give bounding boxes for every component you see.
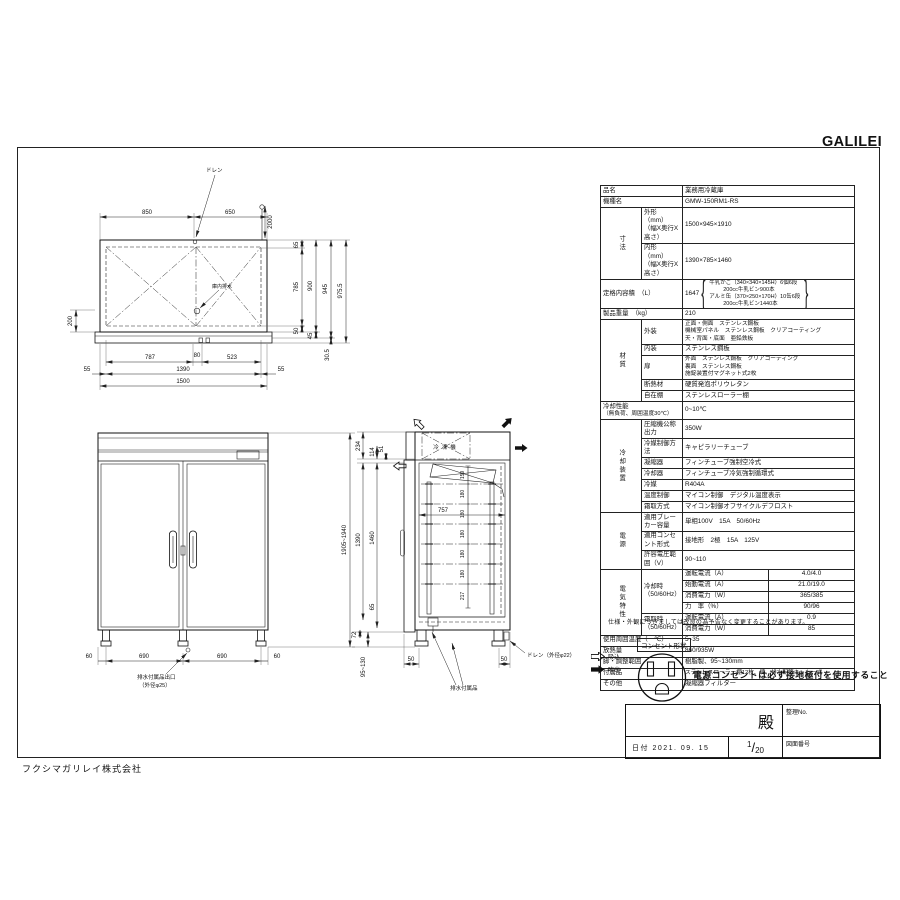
- group-dimensions: 寸法: [601, 208, 642, 280]
- dim-30-5: 30.5: [325, 349, 331, 361]
- group-material: 材質: [601, 320, 642, 402]
- group-refrigeration: 冷却装置: [601, 420, 642, 513]
- cell-refrigerant-label: 冷媒: [642, 480, 683, 491]
- drawing-sheet: GALILEI フクシマガリレイ株式会社: [0, 0, 900, 900]
- dim-55-right: 55: [278, 367, 285, 373]
- dim-787: 787: [145, 355, 156, 361]
- cell-inner-label: 内形 （mm）（幅X奥行X高さ）: [642, 243, 683, 279]
- cell-run-current-value: 4.0/4.0: [769, 569, 855, 580]
- cell-start-current-label: 始動電流（A）: [683, 580, 769, 591]
- front-drain-label: 排水付属品出口: [137, 673, 176, 681]
- cell-outer-label: 外形 （mm）（幅X奥行X高さ）: [642, 208, 683, 244]
- dim-900: 900: [308, 280, 314, 291]
- cell-cooling-perf-value: 0~10℃: [683, 402, 855, 420]
- cell-shelf-label: 自在棚: [642, 391, 683, 402]
- front-drain-dia: （外径φ25）: [139, 681, 171, 689]
- cell-cooling-mode: 冷却時（50/60Hz）: [642, 569, 683, 613]
- cell-refrigerant-value: R404A: [683, 480, 855, 491]
- dim-1460: 1460: [370, 531, 376, 545]
- cell-pf-value: 90/96: [769, 602, 855, 613]
- cell-evaporator-value: フィンチューブ冷気強制循環式: [683, 469, 855, 480]
- dim-757: 757: [438, 508, 449, 514]
- cell-compressor-value: 350W: [683, 420, 855, 439]
- front-view: 60 690 690 60 排水付属品出口 （外径φ25） 1905~1940: [86, 433, 355, 689]
- spec-table: 品名業務用冷蔵庫 機種名GMW-150RM1-RS 寸法 外形 （mm）（幅X奥…: [600, 185, 855, 691]
- pitch-180-3: 180: [460, 530, 466, 539]
- dim-114: 114: [370, 447, 376, 457]
- cell-weight-label: 製品重量 （kg）: [601, 309, 683, 320]
- spec-note: 仕様・外観につきましては改良の為予告なく変更することがあります。: [608, 617, 809, 626]
- row-weight: 製品重量 （kg）210: [601, 309, 855, 320]
- dim-690-left: 690: [139, 654, 150, 660]
- cell-heat-value: 860/935W: [683, 646, 855, 657]
- dim-200: 200: [68, 315, 74, 326]
- row-capacity: 定格内容積 （L） 1647 牛乳かご（340×340×145H）6個6段 20…: [601, 279, 855, 309]
- cell-shelf-value: ステンレスローラー棚: [683, 391, 855, 402]
- dim-50-right: 50: [501, 657, 508, 663]
- dim-45: 45: [308, 332, 314, 339]
- cell-start-current-value: 21.0/19.0: [769, 580, 855, 591]
- row-model: 機種名GMW-150RM1-RS: [601, 197, 855, 208]
- cell-insulation-label: 断熱材: [642, 380, 683, 391]
- cell-interior-label: 内装: [642, 344, 683, 355]
- cell-defrost-label: 霜取方式: [642, 502, 683, 513]
- cell-model-value: GMW-150RM1-RS: [683, 197, 855, 208]
- pitch-180-5: 180: [460, 570, 466, 579]
- cell-interior-value: ステンレス鋼板: [683, 344, 855, 355]
- dim-60-left: 60: [86, 654, 93, 660]
- dim-51: 51: [379, 445, 385, 452]
- dim-1390: 1390: [176, 367, 190, 373]
- cell-pf-label: 力 率（%）: [683, 602, 769, 613]
- dim-234: 234: [356, 440, 362, 451]
- dim-2000: 2000: [268, 215, 274, 229]
- cell-refctrl-value: キャピラリーチューブ: [683, 439, 855, 458]
- blowout-arrow-icon: [591, 665, 605, 674]
- drain-acc-label: 排水付属品: [450, 684, 478, 692]
- cell-capacity-value: 1647 牛乳かご（340×340×145H）6個6段 200cc牛乳ビン900…: [683, 279, 855, 309]
- dim-523: 523: [227, 355, 238, 361]
- dim-50: 50: [294, 327, 300, 334]
- scale-cell: 1/20: [729, 737, 783, 758]
- dim-945: 945: [323, 283, 329, 294]
- dim-72: 72: [352, 631, 358, 638]
- inner-drain-label: 庫内排水: [212, 283, 232, 290]
- cell-door-value: 外面 ステンレス鋼板 クリアコーティング裏面 ステンレス鋼板施錠装置付マグネット…: [683, 355, 855, 380]
- pitch-180-1: 180: [460, 490, 466, 499]
- cell-legs-value: 樹脂製、95~130mm: [683, 657, 855, 668]
- cell-condenser-label: 凝縮器: [642, 458, 683, 469]
- row-cooling-perf: 冷却性能（無負荷、周囲温度30℃） 0~10℃: [601, 402, 855, 420]
- cell-defrost-value: マイコン制御オフサイクルデフロスト: [683, 502, 855, 513]
- dim-785: 785: [294, 281, 300, 292]
- cell-outlet-value: 接地形 2極 15A 125V: [683, 531, 855, 550]
- cell-condenser-value: フィンチューブ強制空冷式: [683, 458, 855, 469]
- dim-65: 65: [370, 603, 376, 610]
- legend-intake: 吸込: [591, 652, 620, 661]
- cell-power-value: 365/385: [769, 591, 855, 602]
- row-breaker: 電源 適用ブレーカー容量 単相100V 15A 50/60Hz: [601, 513, 855, 532]
- drain-label: ドレン: [206, 168, 223, 174]
- cell-weight-value: 210: [683, 309, 855, 320]
- cell-compressor-label: 圧縮機公称出力: [642, 420, 683, 439]
- legend-blowout: 吹出: [591, 665, 620, 674]
- dim-650: 650: [225, 210, 236, 216]
- cell-evaporator-label: 冷却器: [642, 469, 683, 480]
- dim-95-130: 95~130: [361, 656, 367, 677]
- ground-warning-text: 電源コンセントは必ず接地極付を使用すること: [693, 668, 888, 681]
- cell-item-label: 品名: [601, 186, 683, 197]
- dim-55-left: 55: [84, 367, 91, 373]
- cell-capacity-label: 定格内容積 （L）: [601, 279, 683, 309]
- dim-975-5: 975.5: [338, 283, 344, 299]
- dim-60-right: 60: [274, 654, 281, 660]
- cell-tempctrl-value: マイコン制御 デジタル温度表示: [683, 491, 855, 502]
- dim-65: 65: [294, 241, 300, 248]
- row-outer-dim: 寸法 外形 （mm）（幅X奥行X高さ） 1500×945×1910: [601, 208, 855, 244]
- cell-refctrl-label: 冷媒制御方法: [642, 439, 683, 458]
- pitch-217: 217: [460, 592, 466, 601]
- side-drain-label: ドレン（外径φ22）: [527, 651, 575, 659]
- cell-voltage-label: 許容電圧範囲（V）: [642, 550, 683, 569]
- pitch-159: 159: [460, 471, 466, 480]
- machine-room-label: 冷凍機: [433, 443, 459, 451]
- cell-outlet-label: 適用コンセント形式: [642, 531, 683, 550]
- dim-80: 80: [194, 353, 201, 359]
- cell-item-value: 業務用冷蔵庫: [683, 186, 855, 197]
- dim-50-left: 50: [408, 657, 415, 663]
- top-view: ドレン 庫内排水 850 650 2000 65: [68, 168, 350, 390]
- drawing-number-cell: 図面番号: [783, 737, 880, 758]
- row-compressor: 冷却装置 圧縮機公称出力 350W: [601, 420, 855, 439]
- pitch-180-2: 180: [460, 510, 466, 519]
- control-number-cell: 整理No.: [783, 705, 880, 736]
- cell-exterior-label: 外装: [642, 320, 683, 345]
- row-exterior: 材質 外装 正面・側面 ステンレス鋼板機械室パネル ステンレス鋼板 クリアコーテ…: [601, 320, 855, 345]
- row-item: 品名業務用冷蔵庫: [601, 186, 855, 197]
- title-block: 殿 整理No. 日付 2021. 09. 15 1/20 図面番号: [625, 704, 881, 759]
- cell-tempctrl-label: 温度制御: [642, 491, 683, 502]
- dim-height-range: 1905~1940: [342, 524, 348, 555]
- cell-door-label: 扉: [642, 355, 683, 380]
- cell-exterior-value: 正面・側面 ステンレス鋼板機械室パネル ステンレス鋼板 クリアコーティング天・背…: [683, 320, 855, 345]
- drawing-views: ドレン 庫内排水 850 650 2000 65: [20, 150, 600, 760]
- cell-ambient-value: 5~35: [683, 635, 855, 646]
- row-run-current: 電気特性 冷却時（50/60Hz） 運転電流（A） 4.0/4.0: [601, 569, 855, 580]
- date-cell: 日付 2021. 09. 15: [626, 737, 729, 758]
- plug-icon: [634, 651, 690, 705]
- dim-1500: 1500: [176, 379, 190, 385]
- pitch-180-4: 180: [460, 550, 466, 559]
- cell-insulation-value: 硬質発泡ポリウレタン: [683, 380, 855, 391]
- outlet-shape-label: コンセント形状: [637, 638, 691, 652]
- side-view: 冷凍機: [352, 415, 575, 692]
- company-name: フクシマガリレイ株式会社: [22, 762, 142, 775]
- cell-model-label: 機種名: [601, 197, 683, 208]
- dim-850: 850: [142, 210, 153, 216]
- cell-inner-value: 1390×785×1460: [683, 243, 855, 279]
- capacity-notes: 牛乳かご（340×340×145H）6個6段 200cc牛乳ビン900本 アルミ…: [702, 280, 807, 308]
- dim-690-right: 690: [217, 654, 228, 660]
- cell-breaker-label: 適用ブレーカー容量: [642, 513, 683, 532]
- cell-cooling-perf-label: 冷却性能（無負荷、周囲温度30℃）: [601, 402, 683, 420]
- dim-1390: 1390: [356, 533, 362, 547]
- addressee-cell: 殿: [626, 705, 783, 736]
- intake-arrow-icon: [591, 652, 605, 661]
- cell-breaker-value: 単相100V 15A 50/60Hz: [683, 513, 855, 532]
- cell-voltage-value: 90~110: [683, 550, 855, 569]
- cell-run-current-label: 運転電流（A）: [683, 569, 769, 580]
- group-power: 電源: [601, 513, 642, 570]
- cell-power-label: 消費電力（W）: [683, 591, 769, 602]
- cell-outer-value: 1500×945×1910: [683, 208, 855, 244]
